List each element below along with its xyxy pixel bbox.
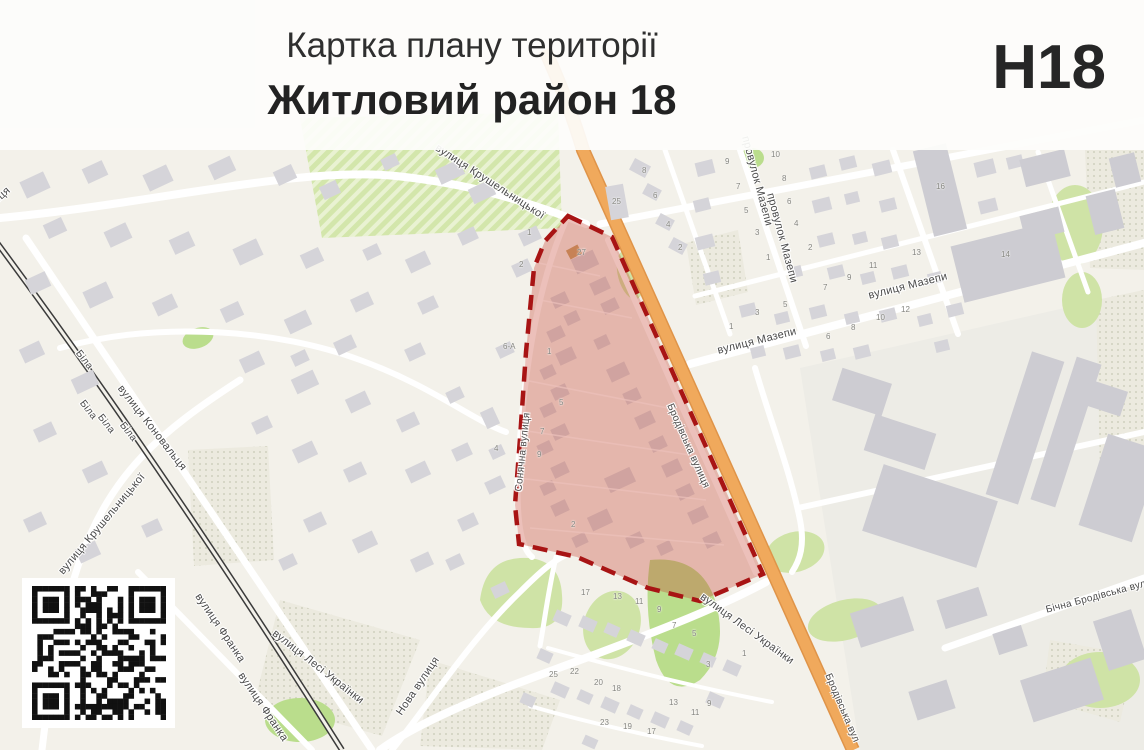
qr-code [22, 578, 175, 728]
orchard-area [188, 446, 274, 566]
district-code: Н18 [992, 32, 1106, 103]
page-title: Картка плану території [0, 26, 944, 66]
territory-plan-card: вулиця Крушельницькоївулиця Коновальцяву… [0, 0, 1144, 750]
map-header: Картка плану території Житловий район 18… [0, 0, 1144, 150]
qr-code-pattern [32, 586, 166, 720]
header-titles: Картка плану території Житловий район 18 [0, 0, 944, 124]
page-subtitle: Житловий район 18 [0, 76, 944, 124]
